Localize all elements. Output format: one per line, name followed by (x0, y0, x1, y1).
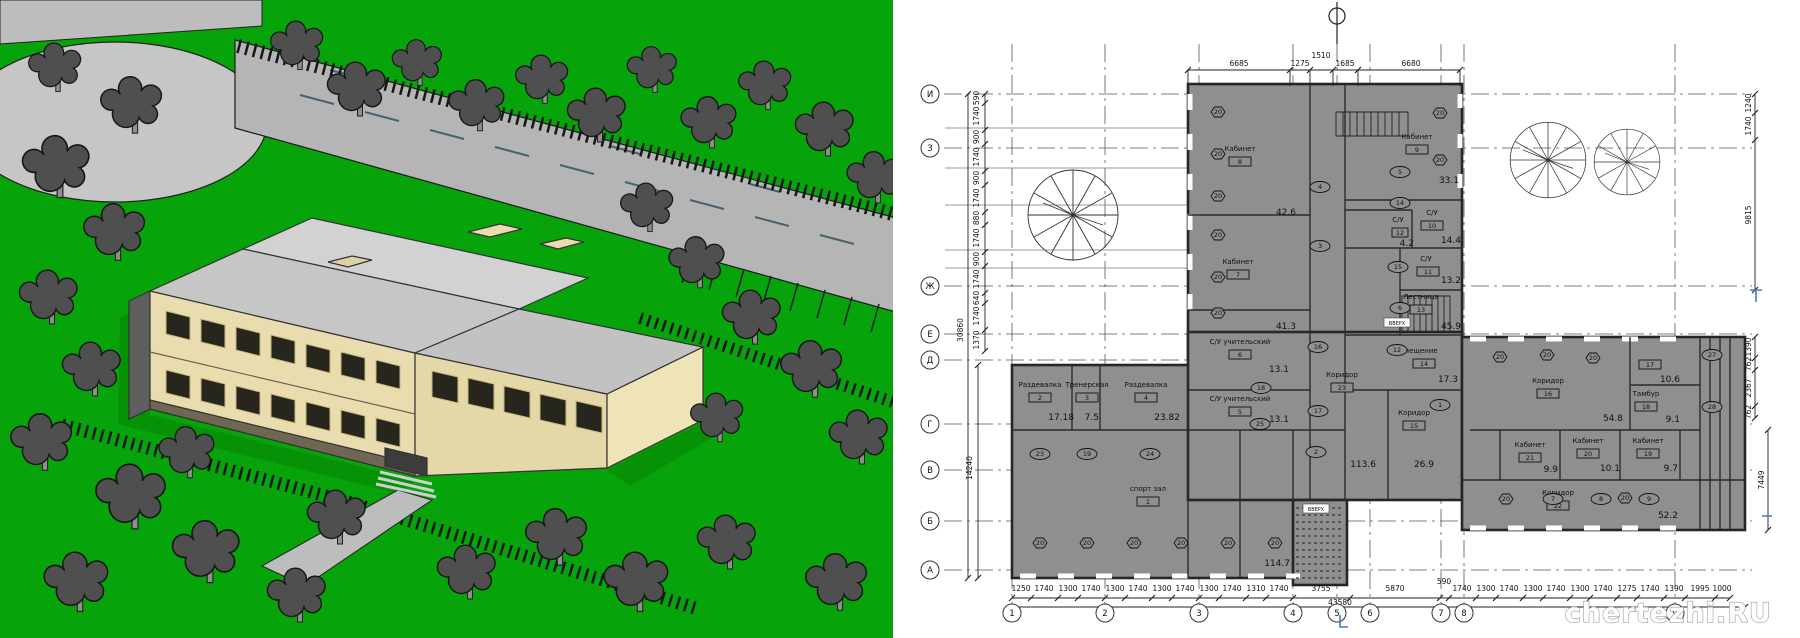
svg-text:880: 880 (972, 211, 981, 226)
svg-text:Кабинет: Кабинет (1632, 437, 1663, 445)
svg-text:1740: 1740 (1593, 584, 1612, 593)
svg-text:1310: 1310 (1246, 584, 1265, 593)
door-tag: 27 (1708, 351, 1716, 359)
svg-text:1740: 1740 (1175, 584, 1194, 593)
svg-text:Коридор: Коридор (1398, 409, 1430, 417)
window-tag: 20 (1214, 108, 1222, 116)
svg-text:9.1: 9.1 (1666, 415, 1680, 425)
svg-text:1390: 1390 (1664, 584, 1683, 593)
svg-text:Кабинет: Кабинет (1401, 133, 1432, 141)
svg-text:Кабинет: Кабинет (1224, 145, 1255, 153)
svg-text:1740: 1740 (972, 228, 981, 247)
door-tag: 12 (1393, 346, 1401, 354)
svg-text:1740: 1740 (1034, 584, 1053, 593)
svg-text:21: 21 (1526, 454, 1534, 462)
svg-text:15: 15 (1410, 422, 1418, 430)
svg-text:17.18: 17.18 (1048, 413, 1074, 423)
svg-text:13: 13 (1417, 306, 1425, 314)
svg-text:17: 17 (1646, 361, 1654, 369)
svg-text:8: 8 (1461, 609, 1466, 619)
svg-text:590: 590 (972, 91, 981, 106)
svg-text:54.8: 54.8 (1603, 414, 1623, 424)
window-tag: 20 (1083, 539, 1091, 547)
svg-text:900: 900 (972, 252, 981, 267)
window-tag: 20 (1177, 539, 1185, 547)
left-3d-view (0, 0, 902, 638)
door-tag: 9 (1647, 495, 1651, 503)
svg-text:Раздевалка: Раздевалка (1019, 381, 1062, 389)
svg-text:640: 640 (972, 291, 981, 306)
svg-text:1300: 1300 (1058, 584, 1077, 593)
window-tag: 20 (1271, 539, 1279, 547)
svg-text:1300: 1300 (1105, 584, 1124, 593)
svg-text:С/У: С/У (1420, 255, 1432, 263)
svg-text:3: 3 (1085, 394, 1089, 402)
svg-text:14240: 14240 (965, 456, 974, 480)
svg-text:12: 12 (1396, 229, 1404, 237)
svg-text:1740: 1740 (1222, 584, 1241, 593)
svg-text:41.3: 41.3 (1276, 322, 1296, 332)
svg-text:1300: 1300 (1152, 584, 1171, 593)
svg-text:Кабинет: Кабинет (1222, 258, 1253, 266)
svg-text:Коридор: Коридор (1326, 371, 1358, 379)
window-tag: 20 (1436, 156, 1444, 164)
door-tag: 14 (1396, 199, 1404, 207)
svg-text:13.1: 13.1 (1269, 415, 1289, 425)
svg-text:С/У: С/У (1426, 209, 1438, 217)
svg-text:9.9: 9.9 (1544, 465, 1559, 475)
door-tag: 1 (1438, 401, 1442, 409)
window-tag: 20 (1502, 495, 1510, 503)
svg-text:7449: 7449 (1757, 470, 1766, 489)
svg-text:1000: 1000 (1712, 584, 1731, 593)
window-tag: 20 (1214, 309, 1222, 317)
svg-text:5870: 5870 (1385, 584, 1404, 593)
door-tag: 8 (1599, 495, 1603, 503)
svg-text:1740: 1740 (972, 106, 981, 125)
door-tag: 15 (1394, 263, 1402, 271)
window-tag: 20 (1621, 494, 1629, 502)
svg-text:1390: 1390 (1744, 337, 1753, 356)
door-tag: 17 (1314, 407, 1322, 415)
door-tag: 28 (1708, 403, 1716, 411)
svg-text:1300: 1300 (1570, 584, 1589, 593)
svg-text:13.1: 13.1 (1269, 365, 1289, 375)
svg-text:Тренерская: Тренерская (1065, 381, 1109, 389)
svg-text:11: 11 (1424, 268, 1432, 276)
svg-text:23: 23 (1338, 384, 1346, 392)
svg-text:С/У: С/У (1392, 216, 1404, 224)
svg-text:Д: Д (927, 356, 934, 366)
svg-text:900: 900 (972, 130, 981, 145)
svg-text:1740: 1740 (1128, 584, 1147, 593)
window-tag: 20 (1436, 109, 1444, 117)
svg-text:Коридор: Коридор (1532, 377, 1564, 385)
svg-text:Ж: Ж (925, 282, 934, 292)
svg-text:1740: 1740 (1546, 584, 1565, 593)
window-tag: 20 (1589, 354, 1597, 362)
door-tag: 16 (1314, 343, 1322, 351)
svg-text:8: 8 (1238, 158, 1242, 166)
door-tag: 25 (1256, 420, 1264, 428)
svg-text:16: 16 (1544, 390, 1552, 398)
svg-text:9815: 9815 (1744, 205, 1753, 224)
svg-text:И: И (927, 90, 933, 100)
window-tag: 20 (1214, 192, 1222, 200)
svg-text:1740: 1740 (1269, 584, 1288, 593)
svg-text:33.1: 33.1 (1439, 176, 1459, 186)
site-and-plan-drawing: ВВЕРХ ВВЕРХ спорт зал1114.7 Раздевалка21… (0, 0, 1800, 638)
svg-text:4: 4 (1290, 609, 1295, 619)
svg-text:3755: 3755 (1311, 584, 1330, 593)
watermark: chertezhi.RU (1565, 598, 1772, 629)
svg-text:Е: Е (927, 330, 932, 340)
svg-text:1510: 1510 (1311, 51, 1330, 60)
svg-text:6685: 6685 (1229, 59, 1248, 68)
window-tag: 20 (1130, 539, 1138, 547)
stair-direction-label: ВВЕРХ (1389, 321, 1406, 327)
svg-text:1740: 1740 (972, 188, 981, 207)
window-tag: 20 (1036, 539, 1044, 547)
svg-text:1740: 1740 (972, 269, 981, 288)
svg-text:В: В (927, 466, 933, 476)
svg-text:13.2: 13.2 (1441, 276, 1461, 286)
svg-text:С/У учительский: С/У учительский (1210, 338, 1271, 346)
svg-text:1740: 1740 (972, 147, 981, 166)
svg-text:9.7: 9.7 (1664, 464, 1678, 474)
svg-text:1: 1 (1009, 609, 1014, 619)
svg-text:45.9: 45.9 (1441, 322, 1461, 332)
svg-text:7: 7 (1236, 271, 1240, 279)
svg-text:4.2: 4.2 (1400, 239, 1414, 249)
svg-text:762: 762 (1744, 357, 1753, 372)
svg-text:1740: 1740 (1640, 584, 1659, 593)
svg-text:19: 19 (1644, 450, 1652, 458)
door-tag: 2 (1314, 448, 1318, 456)
svg-text:1740: 1740 (1081, 584, 1100, 593)
svg-text:1300: 1300 (1476, 584, 1495, 593)
svg-text:14: 14 (1420, 360, 1428, 368)
window-tag: 20 (1496, 353, 1504, 361)
svg-text:1685: 1685 (1335, 59, 1354, 68)
svg-text:10.6: 10.6 (1660, 375, 1680, 385)
svg-text:А: А (927, 566, 933, 576)
svg-text:1250: 1250 (1011, 584, 1030, 593)
svg-text:6: 6 (1238, 351, 1242, 359)
svg-text:114.7: 114.7 (1264, 559, 1290, 569)
window-tag: 20 (1214, 273, 1222, 281)
svg-text:Г: Г (927, 420, 932, 430)
window-tag: 20 (1214, 150, 1222, 158)
svg-text:Кабинет: Кабинет (1514, 441, 1545, 449)
svg-text:2367: 2367 (1744, 378, 1753, 397)
svg-text:6680: 6680 (1401, 59, 1420, 68)
screenshot-canvas: ВВЕРХ ВВЕРХ спорт зал1114.7 Раздевалка21… (0, 0, 1800, 638)
door-tag: 6 (1398, 304, 1402, 312)
floor-plan-view: ВВЕРХ ВВЕРХ спорт зал1114.7 Раздевалка21… (893, 0, 1800, 638)
svg-text:1300: 1300 (1523, 584, 1542, 593)
svg-text:Раздевалка: Раздевалка (1125, 381, 1168, 389)
svg-text:Лестница: Лестница (1403, 293, 1439, 301)
svg-text:2: 2 (1102, 609, 1107, 619)
window-tag: 20 (1214, 231, 1222, 239)
window-tag: 20 (1224, 539, 1232, 547)
svg-text:4: 4 (1144, 394, 1148, 402)
svg-text:9: 9 (1415, 146, 1419, 154)
svg-text:52.2: 52.2 (1658, 511, 1678, 521)
svg-text:1275: 1275 (1290, 59, 1309, 68)
svg-text:7.5: 7.5 (1085, 413, 1099, 423)
hall-area: 113.6 (1350, 460, 1376, 470)
svg-text:1275: 1275 (1617, 584, 1636, 593)
svg-text:1240: 1240 (1744, 93, 1753, 112)
svg-text:10: 10 (1428, 222, 1436, 230)
svg-text:5: 5 (1334, 609, 1339, 619)
svg-text:42.6: 42.6 (1276, 208, 1296, 218)
svg-text:7: 7 (1438, 609, 1443, 619)
svg-text:1370: 1370 (972, 330, 981, 349)
svg-text:1740: 1740 (1744, 116, 1753, 135)
svg-text:1740: 1740 (972, 306, 981, 325)
svg-text:17.3: 17.3 (1438, 375, 1458, 385)
svg-text:1740: 1740 (1499, 584, 1518, 593)
door-tag: 5 (1398, 168, 1402, 176)
building-left-side-face (129, 291, 150, 419)
svg-text:900: 900 (972, 171, 981, 186)
window-tag: 20 (1543, 351, 1551, 359)
door-tag: 24 (1146, 450, 1154, 458)
door-tag: 19 (1083, 450, 1091, 458)
svg-text:Кабинет: Кабинет (1572, 437, 1603, 445)
svg-text:1995: 1995 (1690, 584, 1709, 593)
door-tag: 7 (1551, 495, 1555, 503)
svg-text:Б: Б (927, 517, 933, 527)
door-tag: 3 (1318, 242, 1322, 250)
svg-text:762: 762 (1744, 405, 1753, 420)
door-tag: 18 (1257, 384, 1265, 392)
door-tag: 23 (1036, 450, 1044, 458)
svg-text:14.4: 14.4 (1441, 236, 1461, 246)
svg-text:спорт зал: спорт зал (1130, 485, 1166, 493)
svg-text:2: 2 (1038, 394, 1042, 402)
svg-text:30860: 30860 (956, 318, 965, 342)
svg-text:3: 3 (1196, 609, 1201, 619)
svg-text:5: 5 (1238, 408, 1242, 416)
svg-text:С/У учительский: С/У учительский (1210, 395, 1271, 403)
svg-text:590: 590 (1437, 577, 1452, 586)
svg-text:1: 1 (1146, 498, 1150, 506)
svg-text:1300: 1300 (1199, 584, 1218, 593)
svg-text:1740: 1740 (1452, 584, 1471, 593)
svg-text:6: 6 (1367, 609, 1372, 619)
stair-direction-label: ВВЕРХ (1308, 507, 1325, 513)
door-tag: 4 (1318, 183, 1322, 191)
svg-text:Тамбур: Тамбур (1632, 390, 1660, 398)
svg-text:18: 18 (1642, 403, 1650, 411)
svg-text:20: 20 (1584, 450, 1592, 458)
svg-text:З: З (927, 144, 932, 154)
svg-text:23.82: 23.82 (1154, 413, 1180, 423)
svg-text:26.9: 26.9 (1414, 460, 1434, 470)
svg-text:10.1: 10.1 (1600, 464, 1620, 474)
